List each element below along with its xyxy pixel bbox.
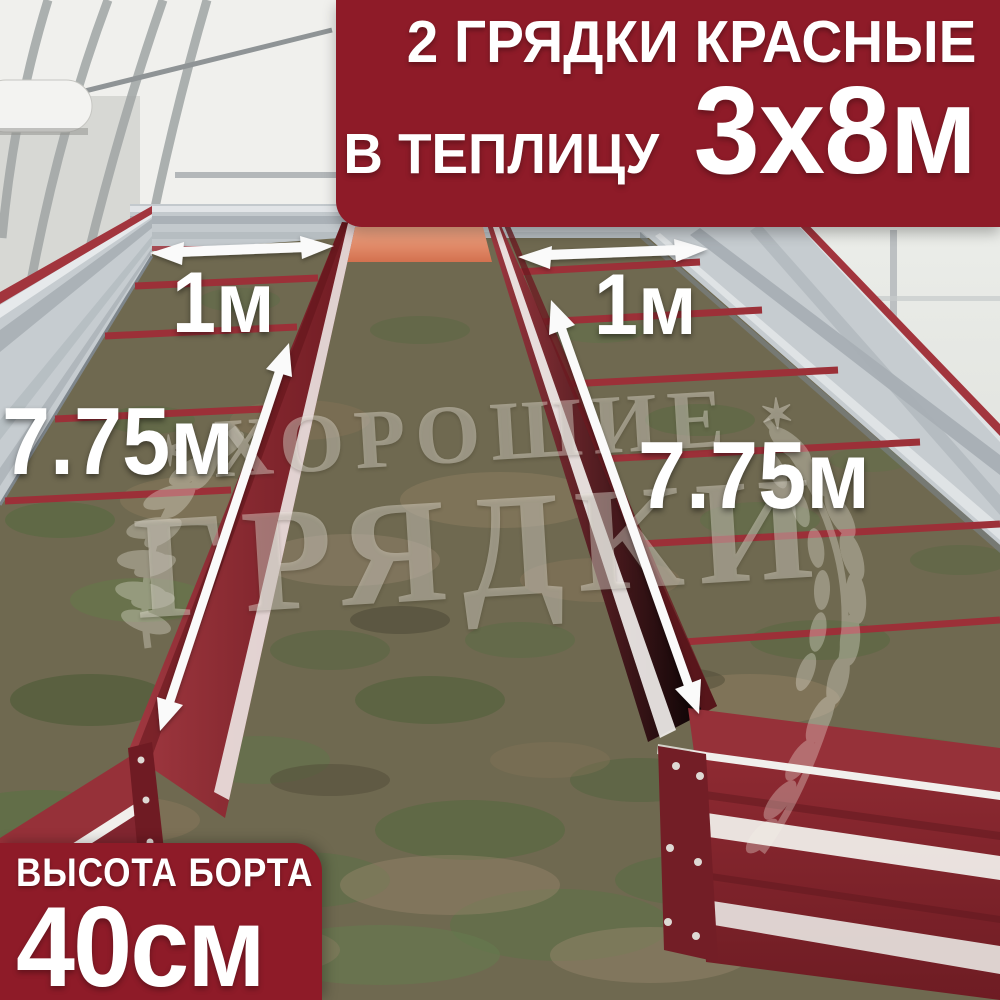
product-photo-card: ✶ ХОРОШИЕ ✶ ГРЯДКИ 1м 1м 7. — [0, 0, 1000, 1000]
label-bed-length-right: 7.75м — [638, 428, 870, 524]
label-bed-length-left: 7.75м — [2, 394, 234, 490]
label-bed-width-left: 1м — [172, 260, 275, 346]
height-value: 40см — [16, 896, 301, 1000]
greenhouse-label: В ТЕПЛИЦУ — [343, 126, 659, 183]
label-bed-width-right: 1м — [594, 262, 697, 348]
top-banner: 2 ГРЯДКИ КРАСНЫЕ В ТЕПЛИЦУ 3х8м — [336, 0, 1000, 227]
greenhouse-size: 3х8м — [693, 76, 976, 188]
right-bed-front — [657, 708, 1000, 1000]
height-banner: ВЫСОТА БОРТА 40см — [0, 843, 322, 1000]
bed-end-panel — [341, 227, 492, 262]
rolled-material — [0, 80, 92, 135]
product-subtitle: В ТЕПЛИЦУ 3х8м — [343, 76, 976, 188]
